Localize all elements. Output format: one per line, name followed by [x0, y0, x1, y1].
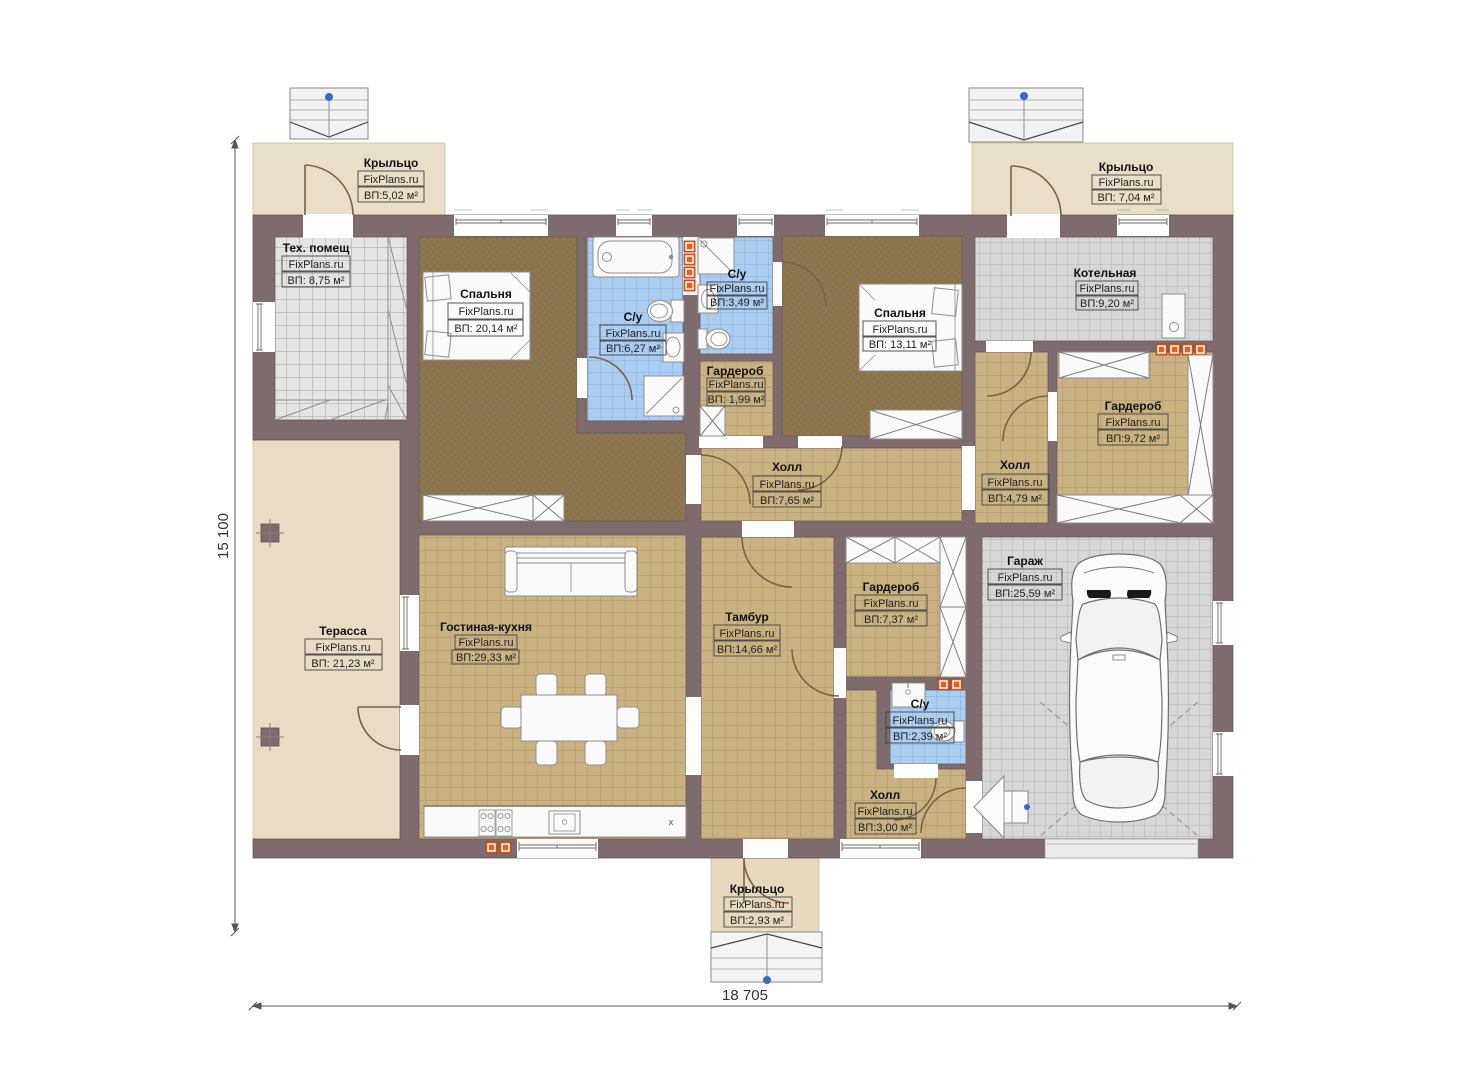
svg-text:FixPlans.ru: FixPlans.ru: [708, 379, 763, 391]
svg-text:С/у: С/у: [911, 697, 930, 711]
svg-text:Спальня: Спальня: [460, 287, 512, 301]
svg-text:ВП:4,79 м²: ВП:4,79 м²: [988, 493, 1042, 505]
svg-text:ВП:25,59 м²: ВП:25,59 м²: [995, 588, 1055, 600]
svg-text:FixPlans.ru: FixPlans.ru: [872, 324, 927, 336]
svg-text:ВП:6,27 м²: ВП:6,27 м²: [606, 343, 660, 355]
svg-text:ВП: 20,14 м²: ВП: 20,14 м²: [454, 323, 518, 335]
svg-text:Крыльцо: Крыльцо: [364, 156, 419, 170]
svg-text:Терасса: Терасса: [319, 624, 367, 638]
svg-text:ВП:9,72 м²: ВП:9,72 м²: [1106, 433, 1160, 445]
svg-text:FixPlans.ru: FixPlans.ru: [863, 598, 918, 610]
svg-text:FixPlans.ru: FixPlans.ru: [729, 899, 784, 911]
svg-text:Гардероб: Гардероб: [1105, 399, 1162, 413]
svg-text:Холл: Холл: [870, 788, 900, 802]
svg-text:ВП:2,93 м²: ВП:2,93 м²: [730, 915, 784, 927]
svg-text:ВП:7,37 м²: ВП:7,37 м²: [864, 614, 918, 626]
svg-text:С/у: С/у: [624, 310, 643, 324]
svg-text:x: x: [669, 817, 674, 827]
svg-text:ВП: 13,11 м²: ВП: 13,11 м²: [869, 339, 932, 351]
svg-text:С/у: С/у: [728, 267, 747, 281]
svg-text:FixPlans.ru: FixPlans.ru: [987, 477, 1042, 489]
svg-text:FixPlans.ru: FixPlans.ru: [315, 642, 370, 654]
svg-text:FixPlans.ru: FixPlans.ru: [892, 715, 947, 727]
svg-text:FixPlans.ru: FixPlans.ru: [1098, 177, 1153, 189]
svg-text:FixPlans.ru: FixPlans.ru: [288, 259, 343, 271]
svg-text:FixPlans.ru: FixPlans.ru: [997, 572, 1052, 584]
svg-text:ВП:14,66 м²: ВП:14,66 м²: [717, 644, 777, 656]
svg-text:ВП:5,02 м²: ВП:5,02 м²: [364, 190, 418, 202]
svg-text:ВП:9,20 м²: ВП:9,20 м²: [1080, 298, 1134, 310]
svg-text:Гостиная-кухня: Гостиная-кухня: [440, 620, 532, 634]
svg-text:FixPlans.ru: FixPlans.ru: [605, 328, 660, 340]
svg-text:Гардероб: Гардероб: [707, 364, 764, 378]
svg-text:Крыльцо: Крыльцо: [730, 882, 785, 896]
svg-text:FixPlans.ru: FixPlans.ru: [1105, 417, 1160, 429]
svg-text:FixPlans.ru: FixPlans.ru: [857, 806, 912, 818]
svg-text:ВП:29,33 м²: ВП:29,33 м²: [456, 652, 516, 664]
svg-text:FixPlans.ru: FixPlans.ru: [363, 174, 418, 186]
svg-text:Котельная: Котельная: [1074, 266, 1137, 280]
svg-text:ВП: 21,23 м²: ВП: 21,23 м²: [311, 658, 375, 670]
svg-text:Гардероб: Гардероб: [863, 580, 920, 594]
svg-text:ВП:3,00 м²: ВП:3,00 м²: [858, 822, 912, 834]
svg-text:Тамбур: Тамбур: [725, 610, 769, 624]
svg-text:Спальня: Спальня: [874, 306, 926, 320]
svg-text:ВП:2,39 м²: ВП:2,39 м²: [893, 731, 947, 743]
svg-text:ВП: 7,04 м²: ВП: 7,04 м²: [1097, 192, 1154, 204]
svg-text:ВП: 8,75 м²: ВП: 8,75 м²: [287, 275, 344, 287]
svg-text:FixPlans.ru: FixPlans.ru: [458, 306, 513, 318]
svg-text:FixPlans.ru: FixPlans.ru: [759, 479, 814, 491]
svg-text:Тех. помещ: Тех. помещ: [283, 241, 351, 255]
svg-text:ВП: 1,99 м²: ВП: 1,99 м²: [707, 394, 764, 406]
svg-text:15 100: 15 100: [215, 513, 232, 559]
svg-text:ВП:7,65 м²: ВП:7,65 м²: [760, 495, 814, 507]
svg-text:Холл: Холл: [772, 460, 802, 474]
svg-text:18 705: 18 705: [722, 987, 768, 1004]
svg-text:FixPlans.ru: FixPlans.ru: [709, 283, 764, 295]
svg-text:ВП:3,49 м²: ВП:3,49 м²: [710, 297, 764, 309]
svg-text:Крыльцо: Крыльцо: [1099, 160, 1154, 174]
svg-text:FixPlans.ru: FixPlans.ru: [458, 637, 513, 649]
svg-text:FixPlans.ru: FixPlans.ru: [1079, 283, 1134, 295]
svg-text:Гараж: Гараж: [1007, 554, 1043, 568]
svg-text:Холл: Холл: [1000, 458, 1030, 472]
svg-text:FixPlans.ru: FixPlans.ru: [719, 628, 774, 640]
